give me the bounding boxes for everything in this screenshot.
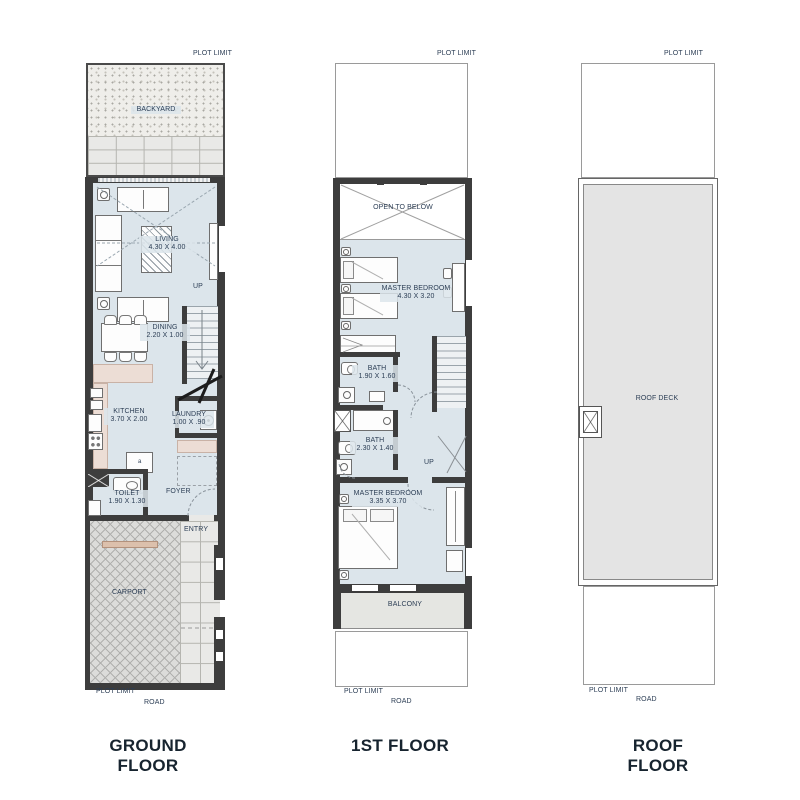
- roof-plot-area-top: [581, 63, 715, 178]
- ground-plot-limit-bottom-label: PLOT LIMIT: [96, 688, 135, 696]
- toilet-label: TOILET1.90 X 1.30: [102, 490, 152, 507]
- entry-door-opening: [189, 515, 214, 521]
- backyard-gravel-texture: [88, 65, 223, 136]
- bedroom1-bed: [340, 257, 398, 283]
- ground-road-label: ROAD: [144, 699, 165, 707]
- roof-plot-area-bottom: [583, 586, 715, 685]
- dining-chair: [104, 315, 117, 325]
- dining-chair: [119, 315, 132, 325]
- bath1-sink: [369, 391, 385, 402]
- kitchen-sink: [90, 388, 103, 398]
- kitchen-fridge: [88, 414, 102, 432]
- bedroom2-window: [466, 548, 472, 576]
- entry-side-wall: [218, 521, 225, 547]
- bedroom1-desk: [452, 263, 465, 312]
- kitchen-counter-top: [93, 364, 153, 383]
- first-plot-area-top: [335, 63, 468, 178]
- first-road-label: ROAD: [391, 698, 412, 706]
- nightstand: [339, 570, 349, 580]
- floor-plan-sheet: PLOT LIMIT BACKYARD a: [0, 0, 800, 800]
- roof-plot-limit-top-label: PLOT LIMIT: [664, 50, 703, 58]
- kitchen-cooktop: [88, 433, 103, 450]
- ground-floor-caption: GROUND FLOOR: [88, 736, 208, 776]
- roof-access-hatch: [583, 411, 598, 433]
- ground-top-wall-glazing: [98, 178, 210, 182]
- entry-label: ENTRY: [184, 526, 208, 534]
- ground-up-label: UP: [193, 283, 203, 291]
- laundry-shelf: [177, 440, 217, 453]
- laundry-wall: [175, 433, 218, 438]
- dining-label: DINING2.20 X 1.00: [140, 324, 190, 341]
- carport-label: CARPORT: [112, 589, 147, 597]
- backyard-label: BACKYARD: [131, 106, 181, 114]
- roof-deck-area: [583, 184, 713, 580]
- roof-plot-limit-bottom-label: PLOT LIMIT: [589, 687, 628, 695]
- shaft-box: [334, 410, 351, 432]
- roof-road-label: ROAD: [636, 696, 657, 704]
- living-sofa-top: [117, 187, 169, 212]
- nightstand: [339, 494, 349, 504]
- living-label: LIVING4.30 X 4.00: [139, 236, 195, 253]
- bedroom2-bed: [338, 506, 398, 569]
- bedroom1-window: [466, 260, 472, 306]
- first-plot-area-bottom: [335, 631, 468, 687]
- roof-floor-caption: ROOF FLOOR: [608, 736, 708, 776]
- structural-post: [377, 178, 384, 185]
- first-floor-caption: 1ST FLOOR: [350, 736, 450, 756]
- bath1-shower: [338, 387, 355, 403]
- bath1-label: BATH1.90 X 1.60: [352, 365, 402, 382]
- living-window: [219, 226, 225, 272]
- nightstand: [341, 321, 351, 330]
- balcony-side-wall: [464, 593, 472, 629]
- kitchen-island-mark: a: [138, 459, 141, 466]
- boundary-wall-niche: [216, 558, 223, 570]
- shaft-box: [88, 474, 109, 487]
- living-tv-unit: [209, 223, 218, 280]
- bedroom2-wardrobe: [446, 487, 465, 546]
- backyard-tile-paving: [88, 136, 223, 175]
- foyer-label: FOYER: [166, 488, 191, 496]
- bath2-label: BATH2.30 X 1.40: [350, 437, 400, 454]
- roof-deck-label: ROOF DECK: [617, 395, 697, 403]
- bath1-wall: [333, 352, 400, 357]
- boundary-wall-segment: [214, 545, 225, 600]
- bedroom2-label: MASTER BEDROOM3.35 X 3.70: [352, 490, 424, 507]
- hall-wall: [333, 477, 408, 483]
- toilet-sink: [88, 500, 101, 516]
- laundry-label: LAUNDRY1.00 X .90: [164, 411, 214, 428]
- balcony-window: [390, 585, 416, 591]
- open-to-below-label: OPEN TO BELOW: [363, 204, 443, 212]
- boundary-wall-niche: [216, 630, 223, 639]
- living-speaker-icon: [97, 188, 110, 201]
- first-plot-limit-top-label: PLOT LIMIT: [437, 50, 476, 58]
- kitchen-label: KITCHEN3.70 X 2.00: [104, 408, 154, 425]
- balcony-side-wall: [333, 593, 341, 629]
- laundry-wall: [175, 396, 218, 401]
- void-dashed-outline: [177, 456, 217, 486]
- carport-left-wall: [85, 521, 90, 688]
- bath2-tub: [353, 410, 396, 431]
- hall-wall: [432, 477, 465, 483]
- dining-chair: [119, 352, 132, 362]
- ground-staircase: [187, 306, 218, 379]
- first-plot-limit-bottom-label: PLOT LIMIT: [344, 688, 383, 696]
- first-up-label: UP: [424, 459, 434, 467]
- balcony-label: BALCONY: [370, 601, 440, 609]
- living-sofa-left: [95, 215, 122, 292]
- nightstand: [341, 284, 351, 293]
- balcony-floor: [341, 593, 464, 629]
- dining-chair: [134, 352, 147, 362]
- balcony-door-glass: [352, 585, 378, 591]
- bath2-shower: [336, 459, 352, 475]
- bedroom1-label: MASTER BEDROOM4.30 X 3.20: [380, 285, 452, 302]
- dining-chair: [104, 352, 117, 362]
- nightstand: [341, 247, 351, 256]
- living-speaker-icon: [97, 297, 110, 310]
- desk-chair: [443, 268, 452, 279]
- structural-post: [420, 178, 427, 185]
- boundary-wall-niche: [216, 652, 223, 661]
- carport-curb: [102, 541, 158, 548]
- bedroom2-dresser: [446, 550, 463, 572]
- ground-backyard-area: [86, 63, 225, 177]
- kitchen-sink: [90, 400, 103, 410]
- first-staircase: [437, 336, 466, 408]
- boundary-wall-segment: [214, 617, 225, 683]
- ground-plot-limit-top-label: PLOT LIMIT: [193, 50, 232, 58]
